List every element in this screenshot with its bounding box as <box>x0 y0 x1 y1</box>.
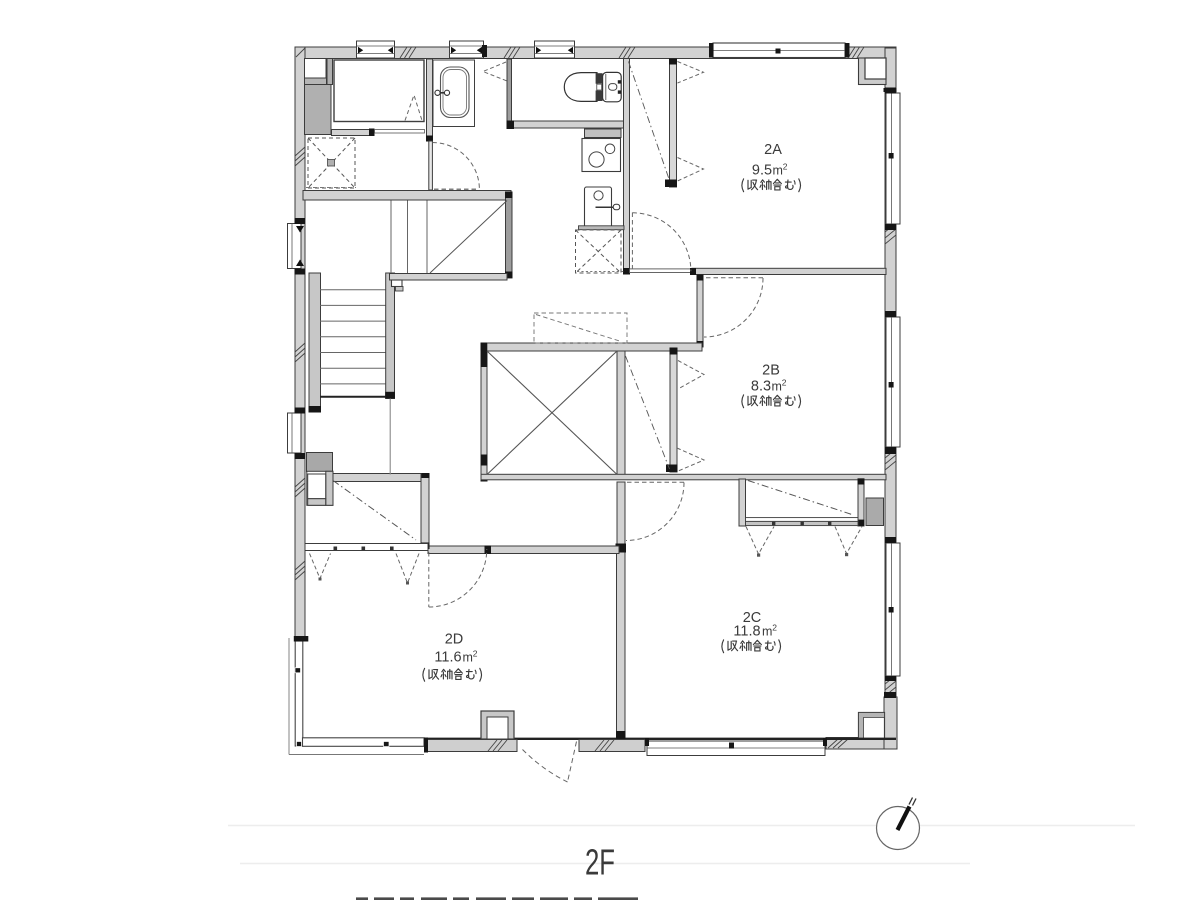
svg-text:11.6: 11.6 <box>434 650 461 666</box>
svg-text:11.8: 11.8 <box>733 624 760 640</box>
svg-text:8.3: 8.3 <box>751 379 771 395</box>
svg-text:9.5: 9.5 <box>752 163 772 179</box>
svg-text:2D: 2D <box>445 632 464 648</box>
svg-text:2A: 2A <box>764 142 782 158</box>
svg-text:2F: 2F <box>585 842 615 883</box>
svg-text:2B: 2B <box>762 363 780 379</box>
